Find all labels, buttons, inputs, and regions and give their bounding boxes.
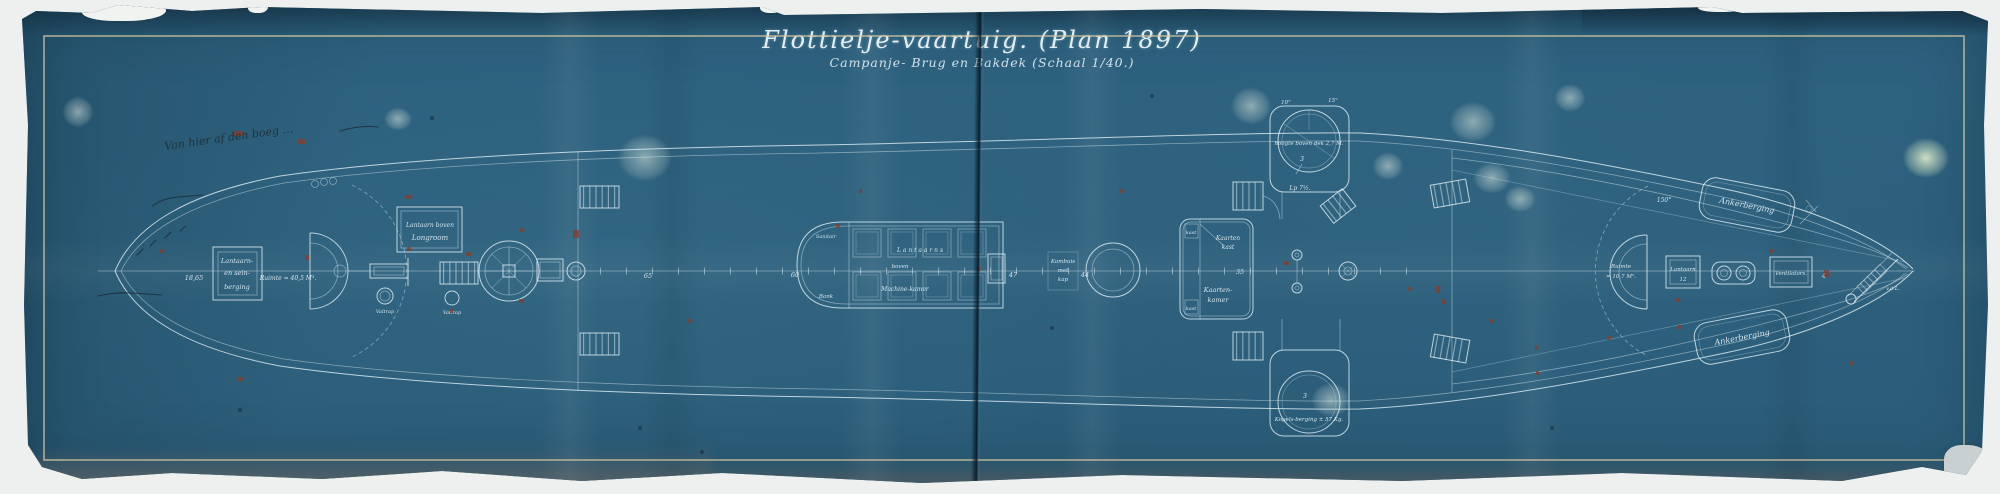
stern-lantern-label: Lantaarn bbox=[1669, 267, 1696, 273]
stern-space-label: = 10,7 M². bbox=[1606, 273, 1636, 280]
capstan bbox=[479, 241, 539, 301]
galley-label: kap bbox=[1058, 277, 1069, 283]
davit-sockets bbox=[1292, 250, 1302, 293]
ship-deck-plan: Lantaarn- en sein- berging Ruimte = 40,5… bbox=[22, 5, 1988, 483]
arc-degree-label: 15° bbox=[1328, 98, 1338, 104]
stern-gun-mount: Ruimte = 10,7 M². bbox=[1606, 235, 1647, 309]
valtrap-label: Valtrap bbox=[376, 309, 395, 315]
centerline-dimension: 12 bbox=[1680, 277, 1687, 283]
bank-label: Bank bbox=[818, 294, 834, 300]
locker-label: kast bbox=[1186, 306, 1198, 312]
centerline-dimension: 65 bbox=[644, 272, 652, 280]
paper-tear bbox=[248, 1, 268, 13]
wheelhouse: kast kast Kaarten kast 35 Kaarten- kamer bbox=[1180, 219, 1253, 319]
bow-space-dimension: Ruimte = 40,5 M³. bbox=[259, 275, 317, 282]
chart-cupboard-label: Kaarten bbox=[1215, 235, 1240, 242]
platform-number: 3 bbox=[1303, 392, 1307, 400]
lantern-store-label: berging bbox=[224, 283, 250, 291]
longroom-label: Longroom bbox=[411, 234, 449, 242]
scanned-blueprint-page: Flottielje-vaartuig. (Plan 1897) Campanj… bbox=[0, 0, 2000, 494]
red-annotation-marks bbox=[160, 131, 1853, 381]
ventilator-box: Ventilators. bbox=[1770, 257, 1812, 287]
lantern-store-label: en sein- bbox=[224, 269, 250, 277]
paper-tear bbox=[760, 0, 784, 13]
chart-cupboard-label: kast bbox=[1222, 244, 1235, 251]
pencil-bow-note: Van hier af den boeg … bbox=[164, 122, 294, 153]
longroom-label: Lantaarn boven bbox=[405, 222, 454, 229]
engine-skylight-label: Machine-kamer bbox=[880, 286, 930, 293]
galley-label: met bbox=[1058, 268, 1069, 274]
centerline-dimension: 47 bbox=[1008, 271, 1018, 279]
lantern-store-box: Lantaarn- en sein- berging bbox=[213, 247, 262, 300]
flagstaff: v.d.L. bbox=[1800, 200, 1900, 304]
bridge-wing-bottom: 3 Kogels-berging ± 57 Kg. bbox=[1270, 319, 1349, 436]
longroom-skylight-box: Lantaarn boven Longroom bbox=[397, 207, 462, 252]
sheet-border-line bbox=[44, 36, 1964, 460]
paper-tear bbox=[82, 0, 166, 21]
arc-degree-label: 150° bbox=[1657, 197, 1671, 204]
arc-degree-label: 10° bbox=[1281, 100, 1291, 106]
bow-length-dimension: 18,65 bbox=[185, 274, 204, 282]
mooring-bitts bbox=[1712, 262, 1755, 284]
chart-room-label: Kaarten- bbox=[1203, 286, 1233, 294]
stern-space-label: Ruimte bbox=[1610, 264, 1632, 270]
centerline-dimension: 60 bbox=[791, 271, 799, 279]
engine-skylight-label: boven bbox=[892, 264, 909, 270]
lantern-store-label: Lantaarn- bbox=[220, 257, 253, 265]
locker-label: kast bbox=[1186, 230, 1198, 236]
platform-number: 3 bbox=[1300, 155, 1304, 163]
stern-lantern-box: Lantaarn 12 bbox=[1666, 256, 1700, 288]
centerline-dimension: 44 bbox=[1080, 271, 1089, 279]
chart-room-label: kamer bbox=[1208, 296, 1230, 304]
paper-tear bbox=[434, 475, 466, 491]
blueprint-sheet: Flottielje-vaartuig. (Plan 1897) Campanj… bbox=[22, 5, 1988, 483]
ventilator-label: Ventilators. bbox=[1775, 271, 1807, 277]
anchor-store-label: Ankerberging bbox=[1718, 196, 1776, 216]
flagstaff-label: v.d.L. bbox=[1886, 286, 1900, 292]
anchor-store-bottom: Ankerberging bbox=[1692, 307, 1792, 366]
sanitair-label: Sanitair bbox=[816, 234, 837, 240]
paper-tear bbox=[1698, 1, 1746, 12]
engine-skylight-label: L a n t a a r n s bbox=[896, 247, 943, 254]
shell-store-label: Kogels-berging ± 57 Kg. bbox=[1274, 417, 1344, 423]
paper-tear bbox=[1944, 445, 1994, 485]
companion-hatch: Valtrap Valtrap bbox=[376, 288, 462, 316]
ladder-dimension: Lp 7½. bbox=[1288, 185, 1310, 192]
galley-label: Kombuis bbox=[1050, 259, 1075, 265]
centerline-dimension: 35 bbox=[1236, 268, 1244, 276]
platform-height-note: hoogte boven dek 2,7 M. bbox=[1274, 141, 1343, 147]
